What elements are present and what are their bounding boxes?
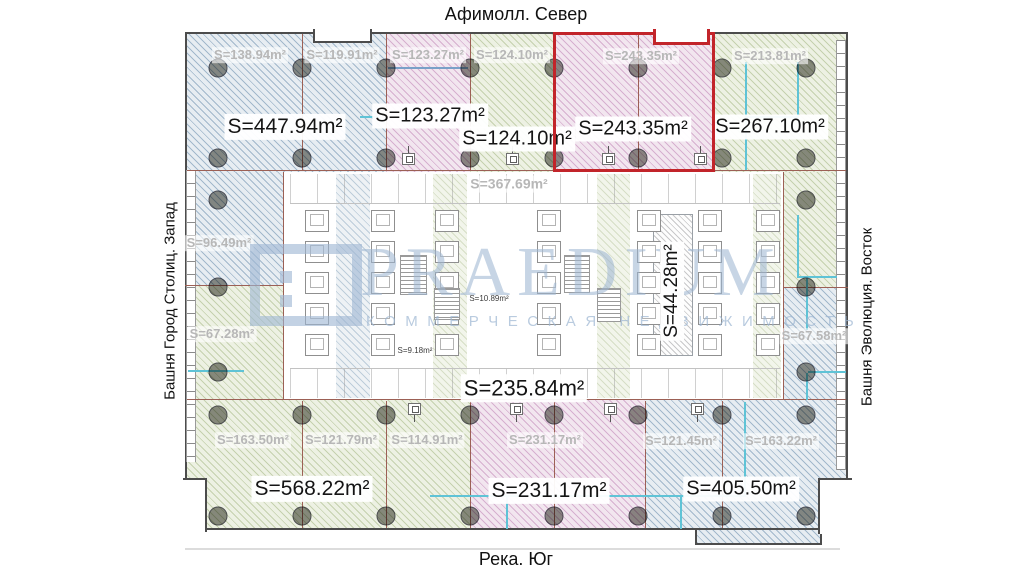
structural-column xyxy=(545,507,564,526)
structural-column xyxy=(713,406,732,425)
door-icon xyxy=(602,153,615,165)
elevator-cell xyxy=(305,210,329,232)
structural-column xyxy=(629,149,648,168)
area-label-faded: S=121.79m² xyxy=(303,432,379,448)
direction-label-south: Река. Юг xyxy=(479,549,553,570)
door-icon xyxy=(506,153,519,165)
elevator-cell xyxy=(305,241,329,263)
area-label-faded: S=163.22m² xyxy=(743,433,819,449)
partition-line xyxy=(797,215,799,278)
area-label-faded: S=231.17m² xyxy=(507,432,583,448)
door-icon xyxy=(408,403,421,415)
elevator-cell xyxy=(698,334,722,356)
corner-cut-bottom-left xyxy=(183,478,207,532)
area-label-large: S=243.35m² xyxy=(575,117,691,142)
partition-line xyxy=(680,495,682,529)
structural-column xyxy=(209,363,228,382)
structural-column xyxy=(713,149,732,168)
structure-line xyxy=(185,285,283,286)
area-label-large: S=124.10m² xyxy=(459,127,575,152)
structural-column xyxy=(377,507,396,526)
area-label-faded: S=367.69m² xyxy=(468,176,549,193)
direction-label-west: Башня Город Столиц. Запад xyxy=(162,202,179,400)
structural-column xyxy=(461,507,480,526)
structural-column xyxy=(713,507,732,526)
door-icon xyxy=(402,153,415,165)
area-label-faded: S=114.91m² xyxy=(389,432,464,448)
structural-column xyxy=(797,191,816,210)
elevator-cell xyxy=(756,334,780,356)
area-label-faded: S=213.81m² xyxy=(732,48,808,64)
area-label-small: S=9.18m² xyxy=(398,347,433,355)
structural-column xyxy=(209,191,228,210)
elevator-cell xyxy=(305,334,329,356)
elevator-cell xyxy=(371,334,395,356)
door-icon xyxy=(604,403,617,415)
elevator-cell xyxy=(537,210,561,232)
area-label-large: S=123.27m² xyxy=(372,104,488,129)
area-label-faded: S=124.10m² xyxy=(474,47,550,63)
zone-left-green-band xyxy=(185,285,283,400)
area-label-large: S=267.10m² xyxy=(712,115,828,140)
facade-mullions-east xyxy=(836,40,846,470)
area-label-large: S=235.84m² xyxy=(461,374,587,402)
structural-column xyxy=(797,363,816,382)
area-label-large: S=44.28m² xyxy=(660,241,684,340)
structural-column xyxy=(293,507,312,526)
praedium-logo-square xyxy=(280,295,292,307)
structural-column xyxy=(209,507,228,526)
structural-column xyxy=(377,149,396,168)
area-label-faded: S=96.49m² xyxy=(185,235,254,251)
area-label-large: S=405.50m² xyxy=(683,477,799,502)
highlighted-unit-notch xyxy=(653,29,710,45)
elevator-cell xyxy=(756,210,780,232)
structural-column xyxy=(209,149,228,168)
structural-column xyxy=(629,406,648,425)
structural-column xyxy=(293,406,312,425)
elevator-cell xyxy=(305,272,329,294)
structural-column xyxy=(377,406,396,425)
area-label-faded: S=123.27m² xyxy=(390,47,466,63)
structural-column xyxy=(629,507,648,526)
area-label-faded: S=67.28m² xyxy=(188,326,257,342)
area-label-large: S=447.94m² xyxy=(225,114,346,140)
structural-column xyxy=(209,406,228,425)
area-label-faded: S=119.91m² xyxy=(304,47,379,63)
structural-column xyxy=(209,278,228,297)
area-label-faded: S=163.50m² xyxy=(215,432,291,448)
elevator-cell xyxy=(435,334,459,356)
direction-label-east: Башня Эволюция. Восток xyxy=(859,228,876,406)
structure-line xyxy=(187,170,846,171)
area-label-faded: S=121.45m² xyxy=(643,433,719,449)
column-tie-line xyxy=(388,67,468,69)
structural-column xyxy=(461,406,480,425)
area-label-faded: S=67.58m² xyxy=(780,328,849,344)
area-label-large: S=231.17m² xyxy=(489,478,610,504)
structural-column xyxy=(713,59,732,78)
structural-column xyxy=(797,406,816,425)
zone-left-blue-band xyxy=(185,172,283,285)
door-icon xyxy=(694,153,707,165)
corner-cut-bottom-right xyxy=(818,478,852,534)
structural-column xyxy=(797,278,816,297)
zone-bottom-green xyxy=(185,400,470,530)
praedium-logo-square xyxy=(280,271,292,283)
structure-line xyxy=(783,287,848,288)
structure-line xyxy=(783,172,784,400)
elevator-cell xyxy=(537,334,561,356)
elevator-cell xyxy=(435,210,459,232)
direction-label-north: Афимолл. Север xyxy=(445,4,587,25)
area-label-faded: S=243.35m² xyxy=(603,48,679,64)
watermark-brand: PRAEDIUM xyxy=(360,238,782,308)
elevator-cell xyxy=(698,210,722,232)
door-icon xyxy=(691,403,704,415)
facade-notch-top xyxy=(313,29,372,43)
structural-column xyxy=(545,406,564,425)
floorplan-canvas: Афимолл. Север Река. Юг Башня Город Стол… xyxy=(0,0,1024,576)
zone-bottom-protrusion xyxy=(695,528,822,545)
structural-column xyxy=(797,507,816,526)
facade-mullions-west xyxy=(186,170,196,462)
structure-line xyxy=(283,172,284,400)
elevator-cell xyxy=(305,303,329,325)
area-label-faded: S=138.94m² xyxy=(212,47,288,63)
door-icon xyxy=(510,403,523,415)
watermark-tagline: КОММЕРЧЕСКАЯ НЕДВИЖИМОСТЬ xyxy=(366,313,863,330)
elevator-cell xyxy=(637,210,661,232)
elevator-cell xyxy=(637,334,661,356)
structural-column xyxy=(797,149,816,168)
structural-column xyxy=(293,149,312,168)
elevator-cell xyxy=(371,210,395,232)
area-label-large: S=568.22m² xyxy=(252,476,373,502)
